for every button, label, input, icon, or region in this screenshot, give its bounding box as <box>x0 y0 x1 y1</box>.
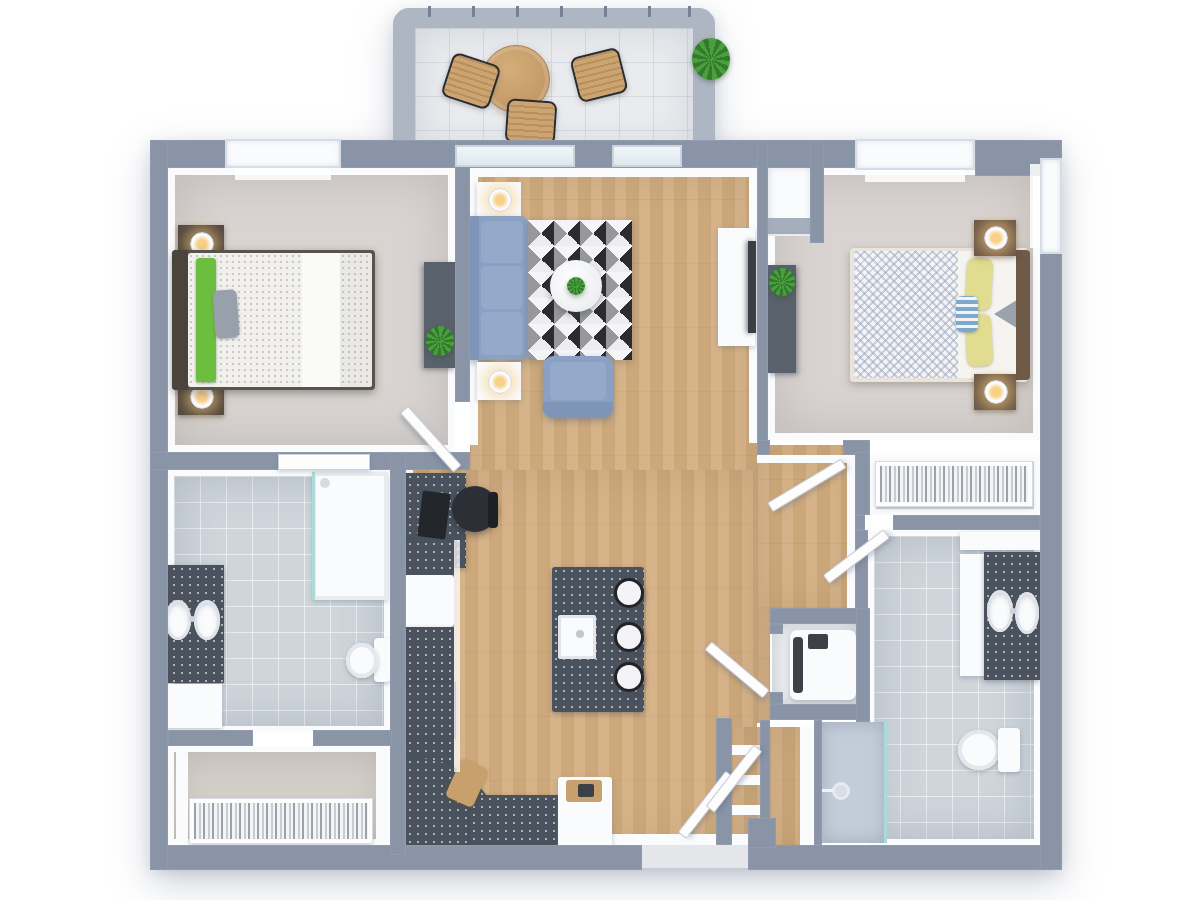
railing-post <box>688 6 691 17</box>
desk-laptop <box>417 490 450 539</box>
hallway-floor-lower <box>757 608 770 723</box>
balcony-fixed-glass <box>612 145 682 167</box>
kitchen-cooktop <box>406 682 456 739</box>
bedroom2-dresser-plant <box>769 268 795 296</box>
kitchen-fridge <box>404 575 454 627</box>
balcony-sliding-door <box>455 145 575 167</box>
closet2-clothes-rail <box>876 462 1032 506</box>
bedroom1-gray-pillow <box>212 289 239 339</box>
office-chair-back <box>488 492 498 528</box>
bedroom1-duvet-band <box>302 253 340 387</box>
cabinet-front-edge <box>454 540 460 772</box>
washer-panel <box>808 634 828 649</box>
bedroom2-duvet <box>854 251 960 378</box>
tv <box>748 241 756 333</box>
sofa-cushion <box>481 221 523 263</box>
bathroom2-toilet-tank <box>998 728 1020 772</box>
closet1-shelf <box>176 752 188 840</box>
armchair-back <box>543 402 613 418</box>
wall-bedroom2-nook-right <box>810 140 824 243</box>
kitchen-counter <box>406 627 454 682</box>
railing-post <box>560 6 563 17</box>
bedroom2-window <box>855 139 975 170</box>
wall-bedroom1-living <box>455 140 470 402</box>
sofa-cushion <box>481 312 523 355</box>
railing-post <box>604 6 607 17</box>
sofa-cushion <box>481 266 523 309</box>
bathroom1-toilet-bowl <box>346 643 378 678</box>
shower2-floor <box>820 722 886 843</box>
wall-laundry-top <box>770 608 870 624</box>
closet1-clothes-rail <box>190 799 372 843</box>
bathroom1-shower-head <box>320 478 330 488</box>
bar-stool <box>614 662 644 692</box>
bedroom1-dresser-plant <box>426 326 454 356</box>
bedroom1-headboard <box>172 250 188 390</box>
bedroom1-window <box>225 139 341 168</box>
wall-laundry-left-stub-b <box>770 692 783 704</box>
bedroom2-accent-pillow <box>956 296 978 332</box>
bathroom1-sink <box>165 600 191 640</box>
outer-wall-bottom-right <box>748 845 1062 870</box>
bedroom2-lamp <box>984 380 1008 404</box>
bedroom2-window-sill <box>865 170 965 182</box>
wall-bedroom2-living <box>757 140 768 445</box>
wall-laundry-right <box>856 608 870 722</box>
bathroom2-faucet <box>1010 608 1016 614</box>
wall-closet1-top-a <box>168 730 253 746</box>
bedroom2-corner-closet-shelf <box>768 218 812 234</box>
entry-threshold <box>642 845 748 868</box>
railing-post <box>428 6 431 17</box>
bedroom1-green-throw <box>196 258 216 382</box>
balcony-chair <box>505 98 558 145</box>
wall-face <box>470 168 757 177</box>
railing-post <box>648 6 651 17</box>
kitchen-counter-bottom <box>470 795 565 845</box>
washer-door-seal <box>793 637 803 693</box>
bathroom1-sliding-door <box>278 454 370 470</box>
shower2-drain <box>832 782 850 800</box>
bedroom2-side-window-sill <box>1030 164 1040 248</box>
bathroom2-toilet-bowl <box>958 730 1000 770</box>
living-table-lamp <box>488 188 512 212</box>
bedroom1-window-sill <box>235 168 331 180</box>
bedroom2-headboard <box>1016 250 1030 380</box>
bedroom1-duvet-foot <box>340 253 372 387</box>
bathroom1-sink <box>194 600 220 640</box>
entry-closet-a-shelf <box>732 805 760 815</box>
bathroom1-faucet <box>189 616 195 622</box>
shower2-head <box>820 789 834 792</box>
closet1-shelf <box>376 752 388 840</box>
outer-wall-left <box>150 140 168 870</box>
coffee-table-plant <box>567 277 585 295</box>
balcony-plant <box>692 38 730 80</box>
armchair-cushion <box>550 362 606 400</box>
wall-closet2-bottom-b <box>893 515 1040 530</box>
bathroom1-shower <box>312 472 388 600</box>
railing-post <box>472 6 475 17</box>
railing-post <box>516 6 519 17</box>
wall-kitchen-bathroom1 <box>390 452 406 855</box>
end-cabinet-tray-slot <box>578 784 594 797</box>
kitchen-counter <box>406 540 454 575</box>
bedroom2-lamp <box>984 226 1008 250</box>
bathroom2-sink <box>1015 592 1039 634</box>
wall-shower2-west <box>814 720 822 845</box>
wall-closet1-top-b <box>313 730 392 746</box>
wall-laundry-bottom <box>770 704 870 720</box>
wall-face <box>847 463 855 608</box>
bar-stool <box>614 622 644 652</box>
bathroom2-shelf <box>960 532 1040 550</box>
floor-plan-canvas <box>0 0 1200 900</box>
bathroom2-vanity-cabinet <box>960 554 986 676</box>
wall-laundry-left-stub-a <box>770 624 783 634</box>
bathroom1-shower-glass <box>312 472 315 600</box>
bedroom2-side-window <box>1040 158 1062 254</box>
wall-closet2-bottom-a <box>855 515 865 530</box>
bar-stool <box>614 578 644 608</box>
wall-bedroom2-bottom-a <box>757 440 770 455</box>
living-table-lamp <box>488 370 512 394</box>
wall-bottom-jog <box>748 818 776 848</box>
island-faucet <box>576 630 584 638</box>
wall-closet2-left <box>855 452 870 515</box>
shower2-glass-panel <box>884 722 887 843</box>
bathroom1-vanity-cabinet <box>164 684 222 728</box>
entry-closet-b-shelf <box>800 727 814 845</box>
